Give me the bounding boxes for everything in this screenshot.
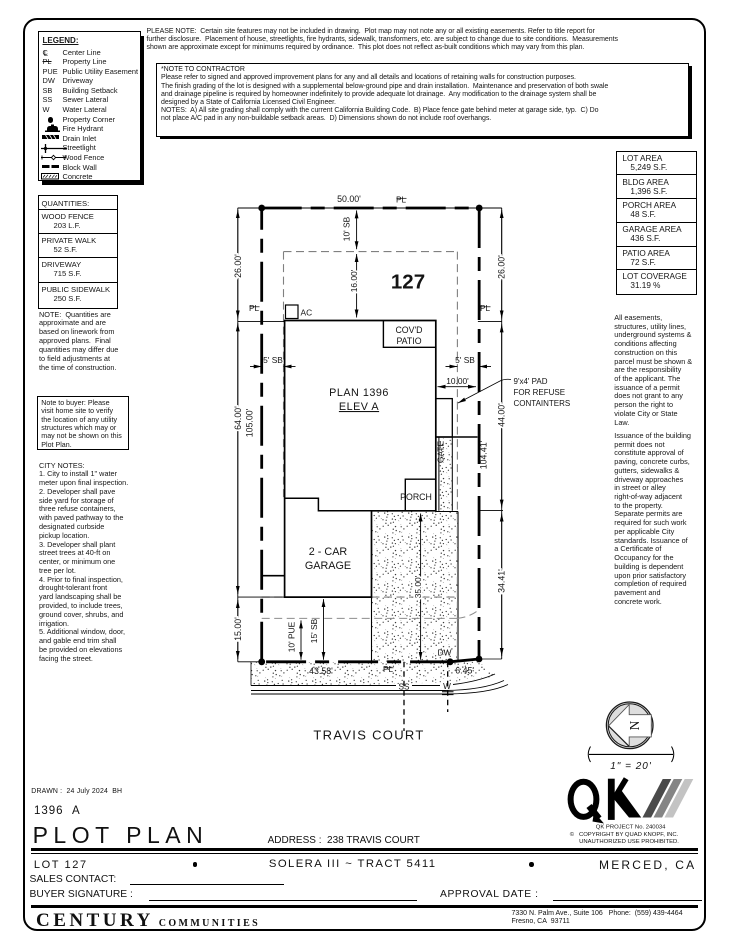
svg-text:10.00': 10.00' — [446, 376, 469, 386]
svg-text:PL: PL — [249, 304, 259, 313]
svg-text:10' PUE: 10' PUE — [286, 621, 296, 652]
svg-text:FOR REFUSE: FOR REFUSE — [514, 388, 566, 397]
svg-text:44.00': 44.00' — [497, 403, 507, 427]
svg-text:10' SB: 10' SB — [341, 216, 351, 241]
svg-text:GARAGE: GARAGE — [305, 560, 351, 572]
svg-text:50.00': 50.00' — [337, 194, 361, 204]
svg-text:TRAVIS COURT: TRAVIS COURT — [313, 728, 424, 743]
svg-text:127: 127 — [391, 271, 425, 294]
svg-text:© COPYRIGHT BY QUAD KNOPF, I: © COPYRIGHT BY QUAD KNOPF, INC. — [570, 831, 679, 838]
svg-text:COV'D: COV'D — [395, 325, 422, 335]
svg-text:PL: PL — [480, 304, 490, 313]
svg-text:104.41': 104.41' — [478, 440, 488, 469]
svg-text:UNAUTHORIZED USE PROHIBITED.: UNAUTHORIZED USE PROHIBITED. — [579, 839, 679, 845]
svg-text:CONTAINTERS: CONTAINTERS — [514, 399, 571, 408]
svg-text:15' SB: 15' SB — [309, 618, 319, 643]
svg-text:34.41': 34.41' — [497, 569, 507, 593]
svg-text:26.00': 26.00' — [233, 254, 243, 278]
svg-text:ELEV A: ELEV A — [339, 401, 380, 413]
svg-text:26.00': 26.00' — [497, 255, 507, 279]
svg-text:6.45': 6.45' — [455, 666, 474, 676]
svg-text:DW: DW — [438, 648, 452, 658]
svg-text:5' SB: 5' SB — [455, 355, 475, 365]
svg-text:N: N — [627, 720, 642, 730]
svg-text:16.00': 16.00' — [349, 269, 359, 292]
svg-text:9'x4' PAD: 9'x4' PAD — [514, 377, 548, 386]
svg-text:15.00': 15.00' — [233, 617, 243, 641]
svg-text:PATIO: PATIO — [396, 336, 421, 346]
svg-text:QK PROJECT No. 240034: QK PROJECT No. 240034 — [596, 825, 666, 831]
svg-text:AC: AC — [301, 308, 313, 318]
svg-text:PLAN 1396: PLAN 1396 — [329, 387, 389, 399]
svg-text:1" = 20': 1" = 20' — [610, 761, 652, 772]
svg-text:PORCH: PORCH — [400, 492, 432, 502]
svg-text:2 - CAR: 2 - CAR — [309, 546, 348, 558]
svg-text:105.00': 105.00' — [244, 408, 254, 437]
svg-text:PL: PL — [383, 665, 393, 674]
svg-text:GATE: GATE — [436, 441, 446, 464]
svg-text:64.00': 64.00' — [233, 406, 243, 430]
svg-text:35.00': 35.00' — [413, 575, 423, 598]
svg-text:43.58': 43.58' — [309, 666, 333, 676]
svg-text:PL: PL — [396, 196, 406, 205]
svg-text:5' SB: 5' SB — [263, 355, 283, 365]
